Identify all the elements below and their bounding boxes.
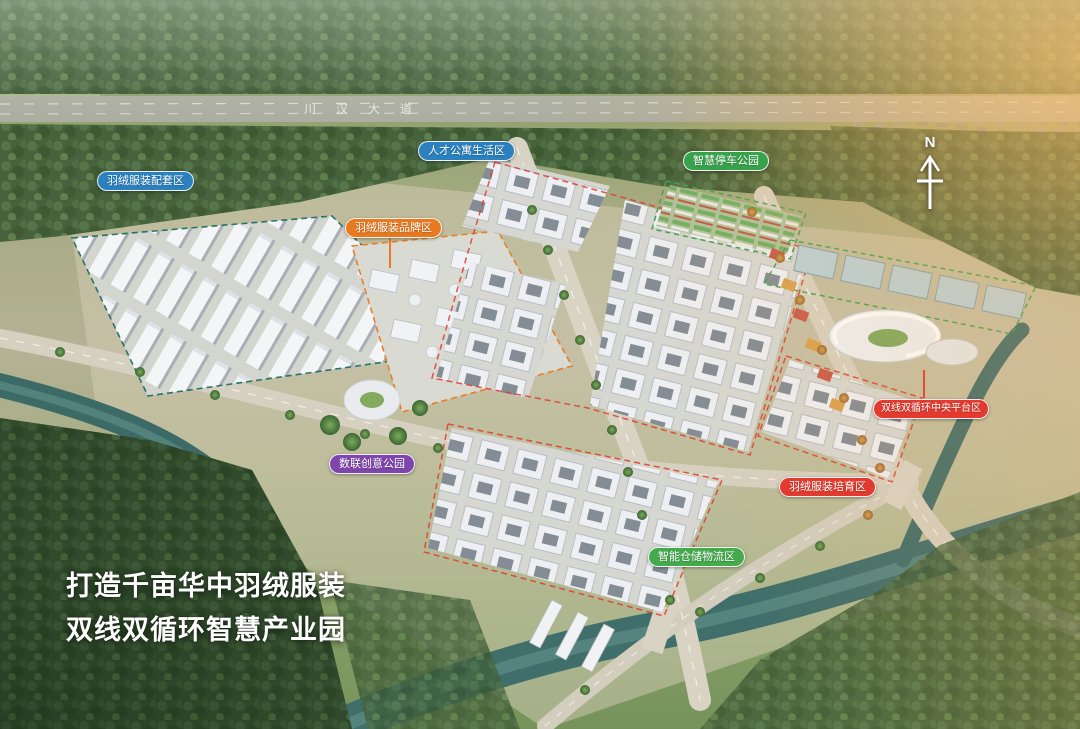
zone-label-talent-apartment: 人才公寓生活区	[418, 141, 515, 161]
zone-label-supporting-area: 羽绒服装配套区	[97, 171, 194, 191]
masterplan-rendering: 川汉大道 羽绒服装配套区 羽绒服装品牌区 人才公寓生活区 智慧停车公园 数联创意…	[0, 0, 1080, 729]
north-arrow: N	[908, 135, 952, 216]
zone-label-brand-area: 羽绒服装品牌区	[345, 218, 442, 238]
zone-label-creative-park: 数联创意公园	[329, 454, 415, 474]
slogan-line-1: 打造千亩华中羽绒服装	[66, 564, 346, 608]
zone-label-central-platform: 双线双循环中央平台区	[873, 399, 989, 419]
zone-label-logistics-area: 智能仓储物流区	[648, 547, 745, 567]
zone-label-cultivation-area: 羽绒服装培育区	[779, 477, 876, 497]
zone-label-smart-parking: 智慧停车公园	[683, 151, 769, 171]
slogan-line-2: 双线双循环智慧产业园	[66, 608, 346, 652]
north-label: N	[908, 135, 952, 151]
north-arrow-icon	[908, 151, 952, 211]
forest-north	[0, 0, 1080, 94]
road-label-chuanhan-avenue: 川汉大道	[304, 100, 432, 117]
slogan: 打造千亩华中羽绒服装 双线双循环智慧产业园	[66, 564, 346, 652]
top-road	[0, 96, 1080, 122]
